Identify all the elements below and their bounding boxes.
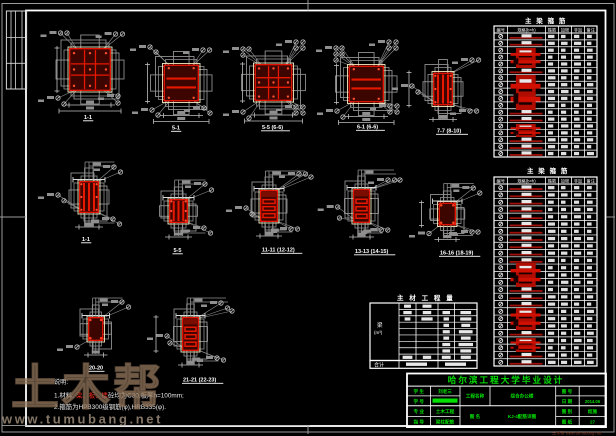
svg-text:规格(b×h): 规格(b×h) — [517, 26, 536, 33]
svg-text:5-1: 5-1 — [172, 126, 180, 132]
svg-text:备注: 备注 — [587, 177, 596, 184]
svg-text:图 纸: 图 纸 — [562, 419, 573, 426]
svg-text:学 生: 学 生 — [413, 388, 424, 395]
svg-text:梁: 梁 — [377, 321, 383, 329]
svg-text:21-21 (22-23): 21-21 (22-23) — [183, 378, 216, 384]
svg-text:专 业: 专 业 — [413, 408, 424, 415]
svg-text:指 导: 指 导 — [413, 419, 424, 426]
svg-text:主 梁 箍 筋: 主 梁 箍 筋 — [527, 166, 569, 175]
svg-text:土木工程: 土木工程 — [436, 408, 455, 415]
svg-text:非加: 非加 — [574, 177, 582, 184]
svg-text:加密: 加密 — [561, 26, 569, 33]
svg-text:27: 27 — [590, 420, 596, 425]
svg-text:箍筋: 箍筋 — [548, 26, 556, 33]
svg-text:7-7 (8-10): 7-7 (8-10) — [437, 129, 461, 135]
svg-text:备注: 备注 — [587, 26, 596, 33]
svg-text:图 号: 图 号 — [562, 388, 573, 395]
svg-text:www.tumubang.net: www.tumubang.net — [1, 412, 163, 427]
svg-text:学 号: 学 号 — [413, 398, 424, 405]
svg-text:日 期: 日 期 — [562, 398, 573, 405]
svg-text:非加: 非加 — [574, 26, 582, 33]
svg-text:16-16 (18-19): 16-16 (18-19) — [440, 251, 473, 257]
svg-text:结施: 结施 — [588, 408, 598, 415]
svg-text:综合办公楼: 综合办公楼 — [511, 393, 534, 400]
svg-text:合计: 合计 — [374, 362, 384, 369]
svg-text:2014.06: 2014.06 — [585, 399, 601, 404]
svg-text:主 梁 箍 筋: 主 梁 箍 筋 — [525, 16, 567, 25]
svg-text:工程名称: 工程名称 — [466, 393, 485, 400]
svg-text:(m³): (m³) — [374, 330, 383, 335]
svg-text:图 名: 图 名 — [470, 413, 480, 420]
svg-text:主 材 工 程 量: 主 材 工 程 量 — [397, 293, 455, 302]
svg-text:KJ-4配筋详图: KJ-4配筋详图 — [508, 413, 537, 420]
svg-text:土木帮: 土木帮 — [11, 362, 164, 415]
svg-text:编号: 编号 — [497, 26, 505, 33]
svg-text:土木帮 www.tumubang.net: 土木帮 www.tumubang.net — [552, 430, 602, 436]
svg-text:刘老三: 刘老三 — [438, 388, 452, 395]
svg-text:梁柱配筋: 梁柱配筋 — [435, 419, 455, 426]
svg-text:哈尔滨工程大学毕业设计: 哈尔滨工程大学毕业设计 — [448, 374, 565, 385]
svg-text:规格(b×h): 规格(b×h) — [517, 177, 536, 184]
svg-text:图 别: 图 别 — [562, 408, 573, 415]
svg-text:11-11 (12-12): 11-11 (12-12) — [262, 248, 295, 254]
svg-text:5-5 (6-6): 5-5 (6-6) — [262, 125, 283, 131]
svg-text:1-1: 1-1 — [84, 115, 92, 121]
svg-text:编号: 编号 — [497, 177, 505, 184]
svg-text:6-1 (6-6): 6-1 (6-6) — [357, 125, 378, 131]
svg-text:13-13 (14-15): 13-13 (14-15) — [355, 249, 388, 255]
svg-text:5-5: 5-5 — [174, 248, 182, 254]
svg-text:加密: 加密 — [561, 177, 569, 184]
svg-text:1-1: 1-1 — [82, 237, 90, 243]
svg-text:箍筋: 箍筋 — [548, 177, 556, 184]
